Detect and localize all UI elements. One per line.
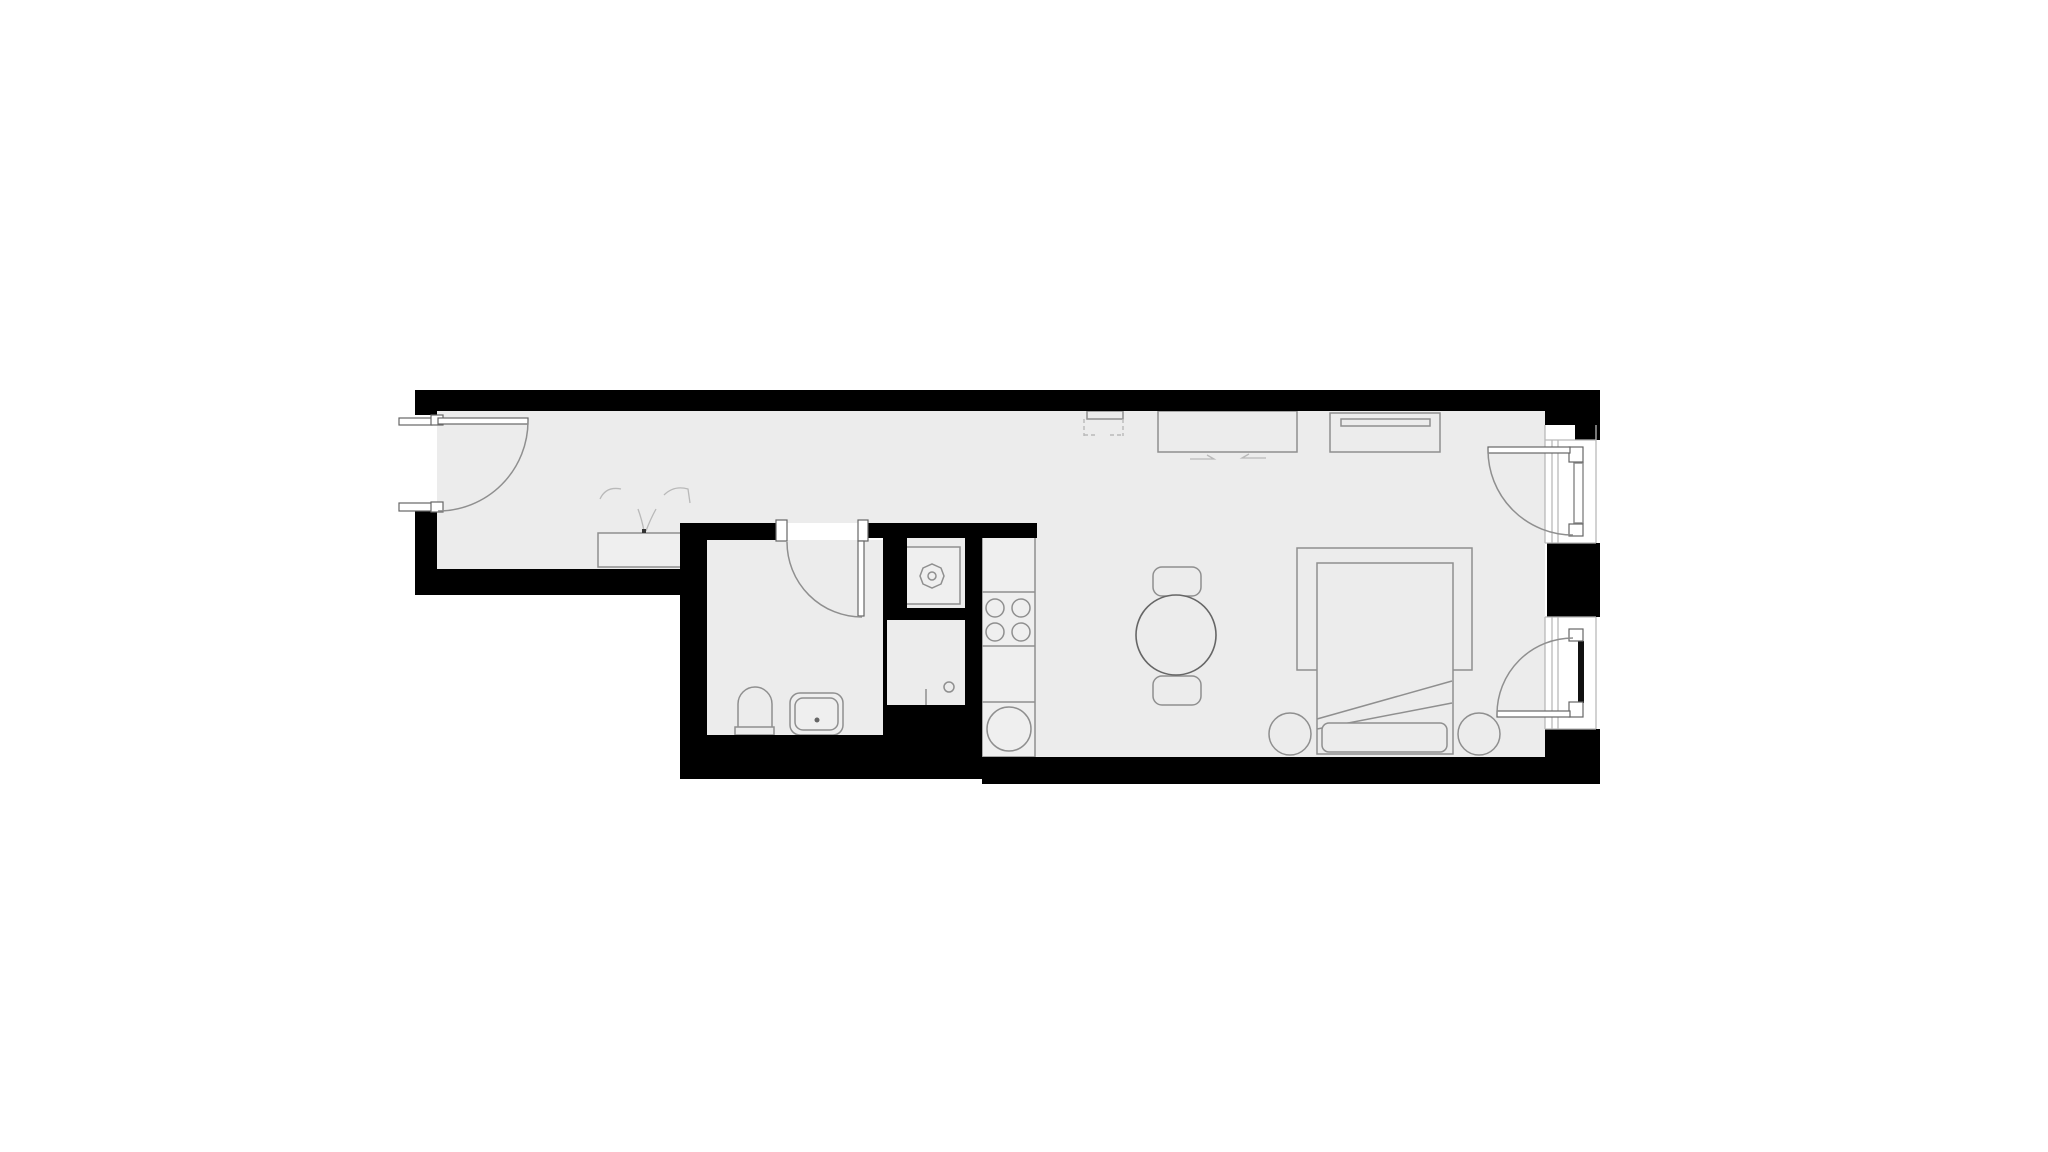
wall-right-step-1 (1545, 411, 1600, 425)
dining-table (1136, 595, 1216, 675)
living-room-floor (1035, 411, 1545, 757)
pillow (1322, 723, 1447, 752)
floor-plan (0, 0, 2048, 1152)
bathroom-door-leaf (858, 541, 864, 616)
wall-right-pier (1547, 543, 1600, 617)
wall-bathroom-top-right (868, 523, 1037, 538)
round-stool-right (1458, 713, 1500, 755)
wall-left-lower (415, 511, 437, 571)
window-upper-sash (1574, 463, 1583, 523)
kitchen-counter (982, 537, 1035, 757)
window-upper-hinge-notch (1569, 447, 1583, 462)
round-stool-left (1269, 713, 1311, 755)
wall-hallway-bottom (415, 569, 690, 595)
desk-sideboard (1158, 411, 1297, 452)
dining-chair-south (1153, 676, 1201, 705)
entrance-sill-top (399, 418, 432, 425)
wall-bathroom-top-left (690, 523, 787, 540)
window-lower-hinge-notch (1569, 702, 1583, 717)
washing-machine (906, 547, 960, 604)
washbasin-drain (815, 718, 820, 723)
wall-bottom-right-corner (1545, 729, 1600, 784)
toilet-cistern (735, 727, 774, 735)
wall-top (415, 390, 1600, 411)
wall-unit (1087, 411, 1123, 419)
bathroom-jamb-left (776, 520, 787, 541)
wall-shower-top (883, 608, 965, 620)
dining-chair-north (1153, 567, 1201, 596)
balcony-door-upper-leaf (1488, 447, 1570, 453)
wardrobe-hinge-dot (642, 529, 646, 533)
balcony-door-lower-leaf (1497, 711, 1570, 717)
corridor-floor (680, 411, 1035, 523)
entrance-door-leaf (438, 418, 528, 424)
wall-bathroom-bottom (680, 735, 907, 779)
window-lower-latch-notch (1569, 629, 1583, 641)
bathroom-jamb-right (858, 520, 868, 541)
window-lower-sash (1578, 641, 1584, 703)
wall-shower-partition (883, 618, 887, 705)
wall-under-shower (883, 705, 982, 779)
window-upper-latch-notch (1569, 524, 1583, 536)
wardrobe (598, 533, 690, 567)
entrance-sill-bottom (399, 503, 432, 511)
wall-left-upper (415, 390, 437, 415)
wall-niche-left (883, 538, 907, 618)
wall-bottom-main (982, 757, 1600, 784)
